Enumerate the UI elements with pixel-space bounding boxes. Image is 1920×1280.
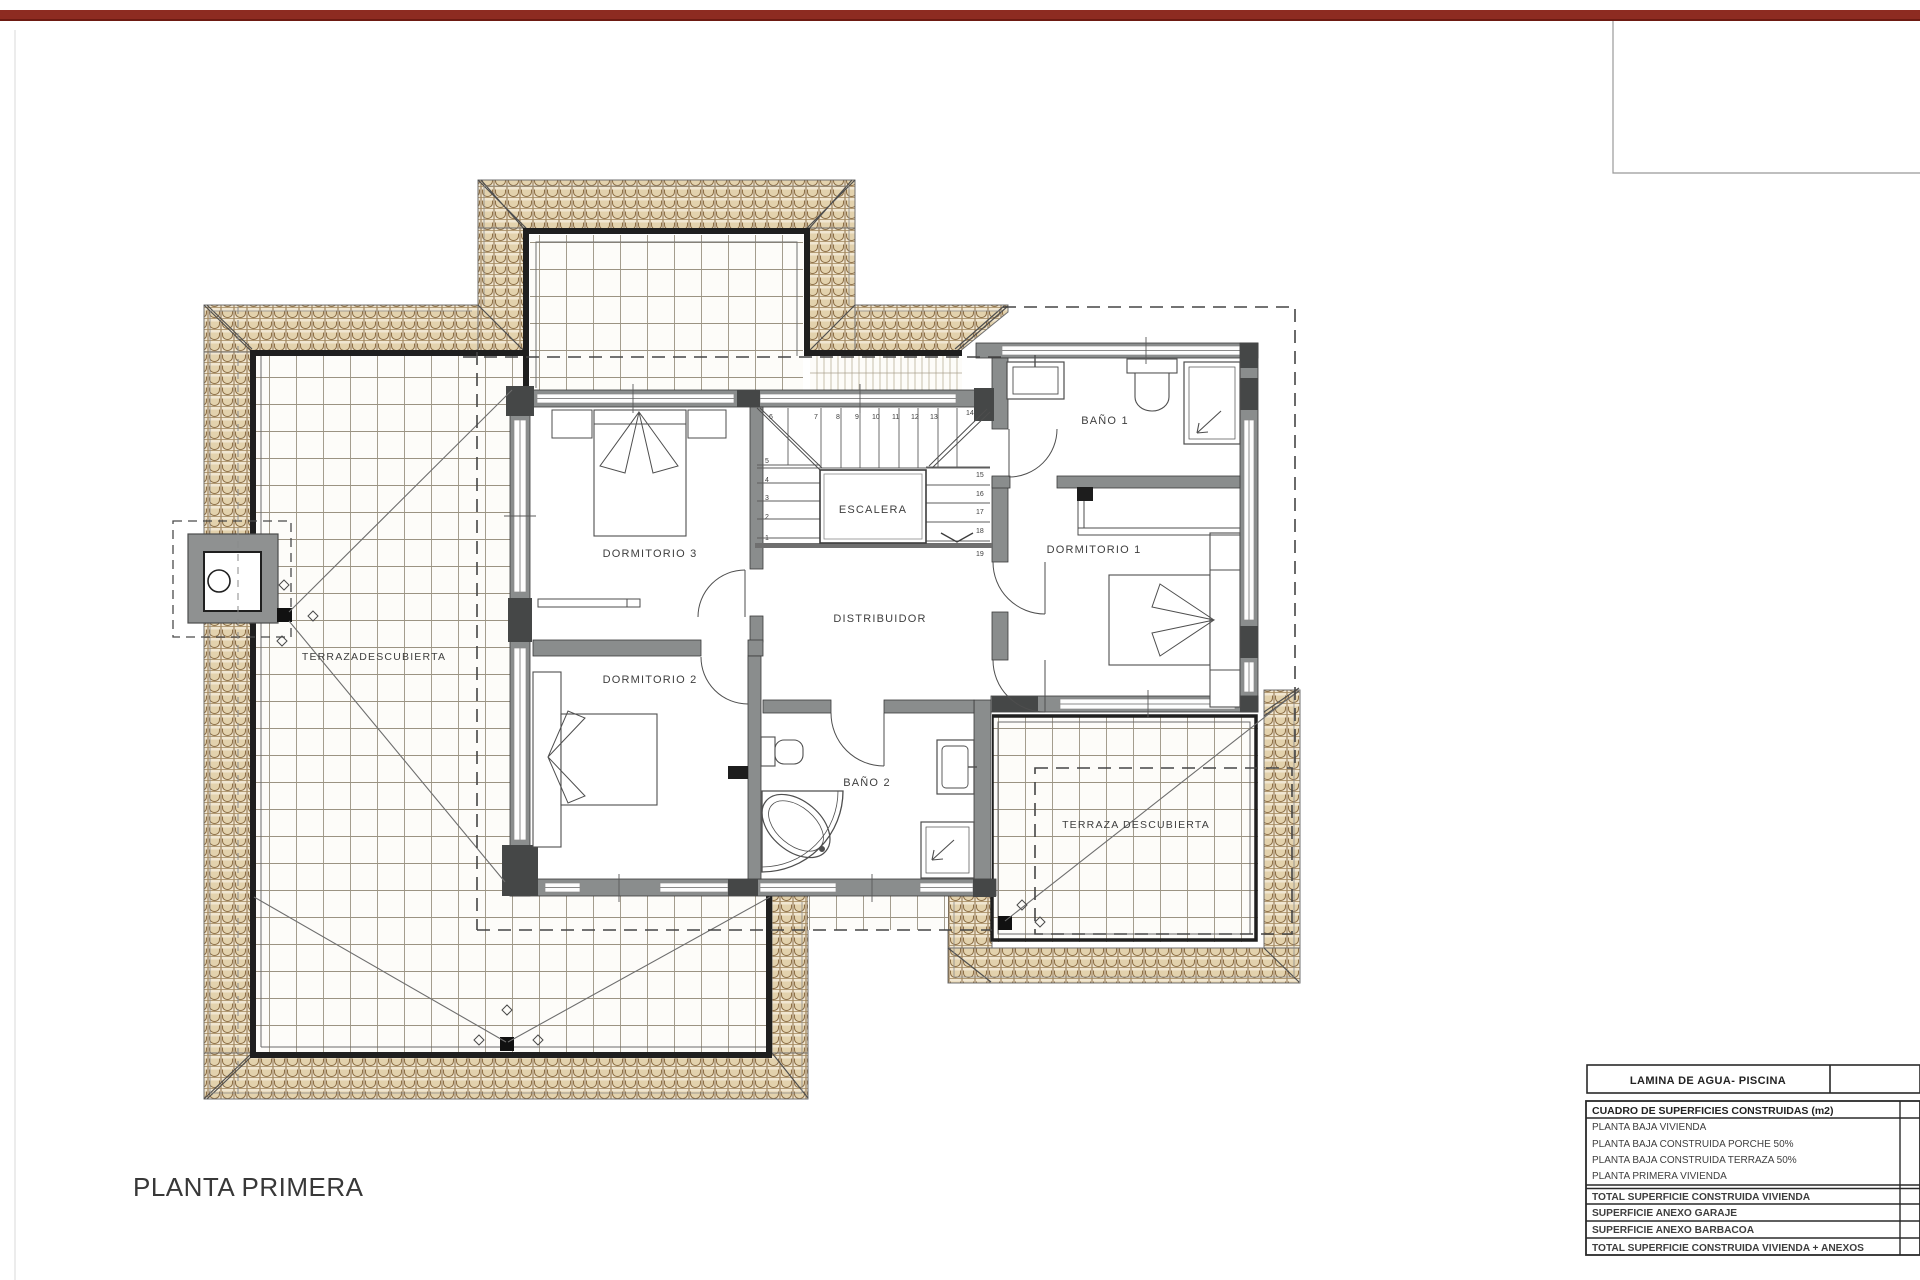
svg-text:15: 15: [976, 472, 984, 479]
svg-text:14: 14: [966, 410, 974, 417]
svg-text:2: 2: [765, 514, 769, 521]
svg-text:DORMITORIO 2: DORMITORIO 2: [603, 674, 698, 686]
svg-text:PLANTA PRIMERA VIVIENDA: PLANTA PRIMERA VIVIENDA: [1592, 1171, 1727, 1182]
svg-text:DISTRIBUIDOR: DISTRIBUIDOR: [833, 613, 926, 625]
svg-text:CUADRO DE SUPERFICIES CONSTRUI: CUADRO DE SUPERFICIES CONSTRUIDAS (m2): [1592, 1105, 1834, 1117]
svg-text:16: 16: [976, 491, 984, 498]
svg-text:18: 18: [976, 528, 984, 535]
svg-text:PLANTA BAJA CONSTRUIDA PORCHE: PLANTA BAJA CONSTRUIDA PORCHE 50%: [1592, 1139, 1794, 1150]
svg-text:DORMITORIO 1: DORMITORIO 1: [1047, 544, 1142, 556]
svg-text:11: 11: [892, 414, 899, 421]
svg-text:9: 9: [855, 414, 859, 421]
svg-text:TERRAZADESCUBIERTA: TERRAZADESCUBIERTA: [302, 651, 446, 663]
svg-text:6: 6: [769, 414, 773, 421]
svg-text:1: 1: [765, 535, 769, 542]
svg-text:17: 17: [976, 509, 984, 516]
svg-text:PLANTA BAJA CONSTRUIDA TERRAZA: PLANTA BAJA CONSTRUIDA TERRAZA 50%: [1592, 1155, 1797, 1166]
svg-text:SUPERFICIE ANEXO GARAJE: SUPERFICIE ANEXO GARAJE: [1592, 1208, 1737, 1219]
svg-text:8: 8: [836, 414, 840, 421]
svg-text:SUPERFICIE ANEXO BARBACOA: SUPERFICIE ANEXO BARBACOA: [1592, 1225, 1755, 1236]
svg-text:PLANTA PRIMERA: PLANTA PRIMERA: [133, 1172, 364, 1202]
svg-text:LAMINA DE AGUA- PISCINA: LAMINA DE AGUA- PISCINA: [1630, 1075, 1786, 1087]
svg-text:BAÑO 2: BAÑO 2: [843, 776, 891, 789]
svg-text:7: 7: [814, 414, 818, 421]
svg-text:TOTAL SUPERFICIE CONSTRUIDA VI: TOTAL SUPERFICIE CONSTRUIDA VIVIENDA + A…: [1592, 1243, 1864, 1254]
svg-text:13: 13: [930, 414, 938, 421]
svg-text:4: 4: [765, 477, 769, 484]
svg-text:3: 3: [765, 495, 769, 502]
svg-text:BAÑO 1: BAÑO 1: [1081, 414, 1129, 427]
svg-text:12: 12: [911, 414, 919, 421]
svg-text:5: 5: [765, 458, 769, 465]
svg-text:DORMITORIO 3: DORMITORIO 3: [603, 548, 698, 560]
svg-text:ESCALERA: ESCALERA: [839, 504, 907, 516]
svg-text:TOTAL SUPERFICIE CONSTRUIDA VI: TOTAL SUPERFICIE CONSTRUIDA VIVIENDA: [1592, 1192, 1811, 1203]
svg-text:TERRAZA DESCUBIERTA: TERRAZA DESCUBIERTA: [1062, 819, 1210, 831]
svg-text:PLANTA BAJA VIVIENDA: PLANTA BAJA VIVIENDA: [1592, 1122, 1707, 1133]
svg-text:10: 10: [872, 414, 880, 421]
svg-text:19: 19: [976, 551, 984, 558]
